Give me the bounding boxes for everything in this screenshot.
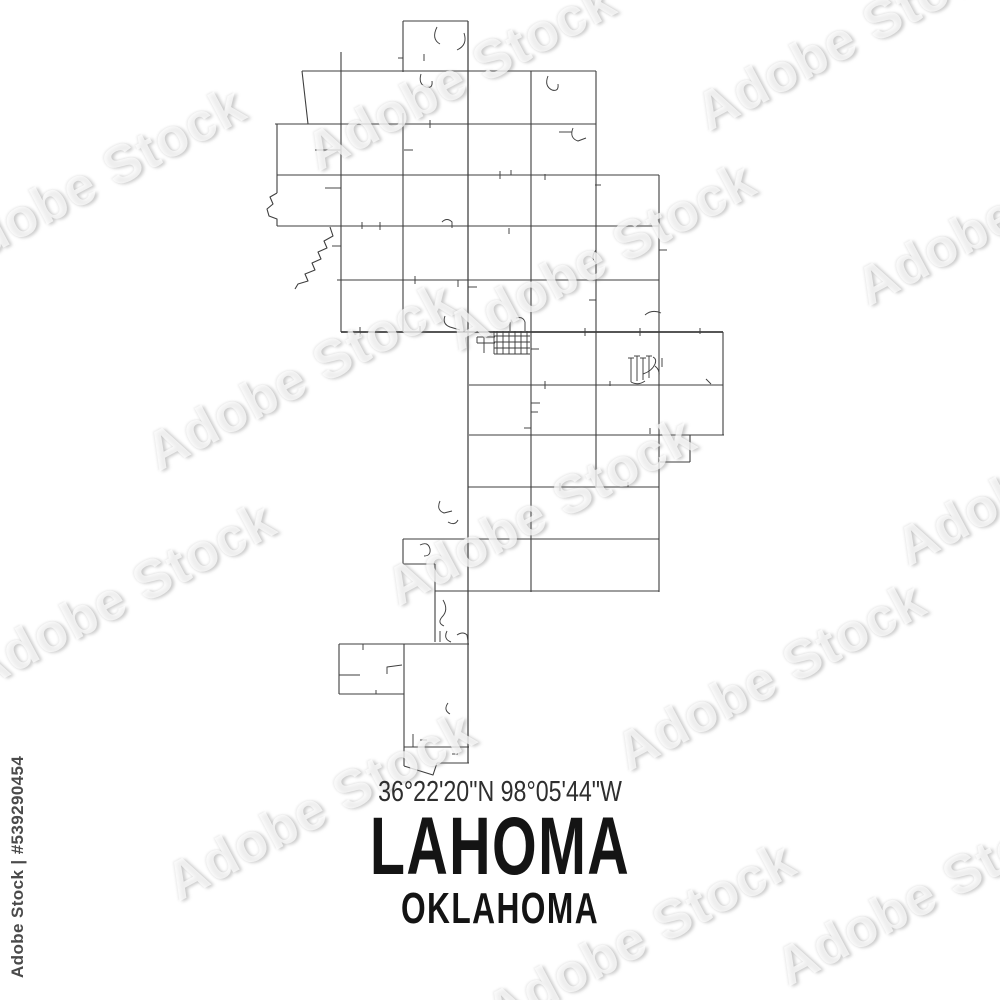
section-road-segment <box>267 193 277 226</box>
minor-road-segment <box>442 220 452 229</box>
minor-road-segment <box>448 520 458 524</box>
section-road-segment <box>302 71 308 124</box>
minor-road-segment <box>457 33 465 50</box>
minor-road-segment <box>446 631 451 642</box>
minor-road-segment <box>706 379 711 384</box>
minor-road-segment <box>572 128 586 141</box>
subdivision-street-segment <box>631 381 645 384</box>
minor-road-segment <box>420 544 430 556</box>
city-title: LAHOMA <box>150 806 850 888</box>
minor-road-segment <box>457 633 468 641</box>
minor-road-segment <box>387 665 402 674</box>
minor-road-segment <box>547 76 558 90</box>
minor-road-segment <box>446 703 450 714</box>
state-subtitle: OKLAHOMA <box>140 887 860 931</box>
minor-road-segment <box>435 27 440 44</box>
minor-road-segment <box>440 600 446 626</box>
minor-road-segment <box>444 316 460 330</box>
minor-road-segment <box>439 501 452 513</box>
section-road-segment <box>404 763 437 775</box>
town-street-segment <box>516 318 525 332</box>
stock-image-canvas: Adobe StockAdobe StockAdobe StockAdobe S… <box>0 0 1000 1000</box>
stock-id-label: Adobe Stock | #539290454 <box>5 706 31 978</box>
minor-road-segment <box>420 74 432 87</box>
section-road-segment <box>295 227 333 289</box>
